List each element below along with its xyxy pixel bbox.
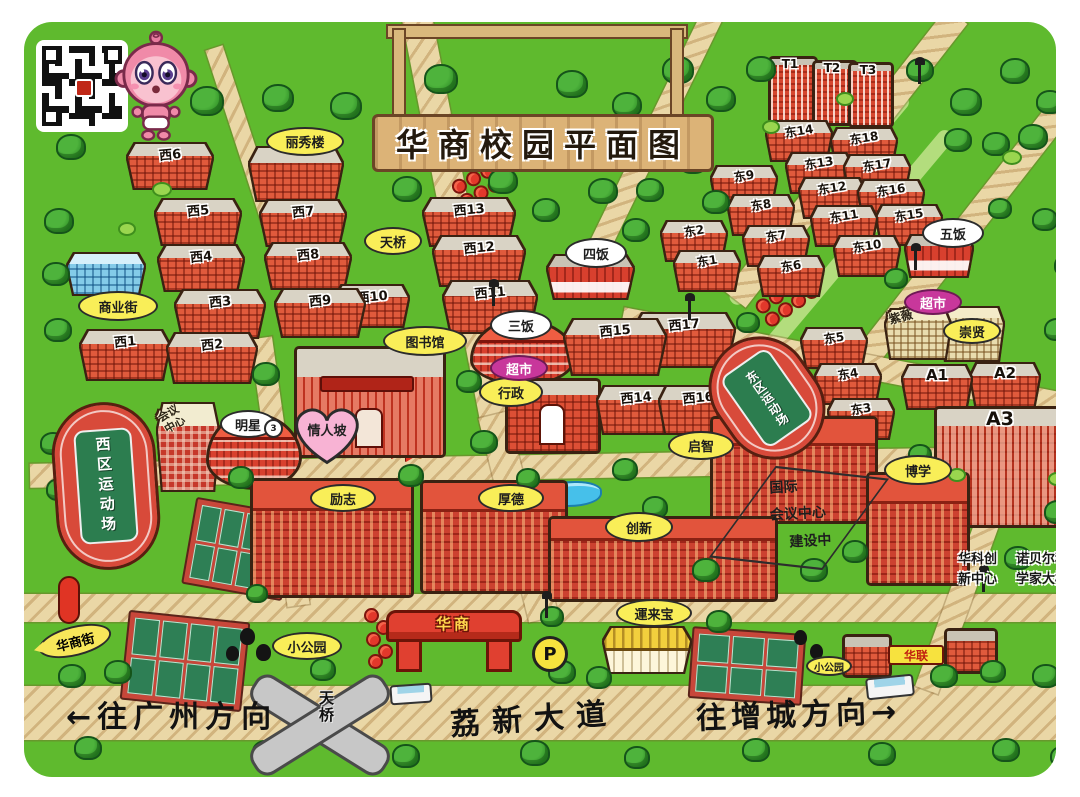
qr-module [42, 99, 49, 106]
street-lamp [918, 64, 921, 84]
dark-tree [794, 630, 807, 645]
court-cell [697, 634, 730, 664]
west-field-label: 西区运动场 [92, 435, 120, 536]
building-roof [604, 628, 690, 651]
qr-module [55, 73, 62, 80]
tree [736, 312, 760, 333]
qr-module [49, 73, 56, 80]
tree [692, 558, 720, 582]
street-lamp [914, 250, 917, 270]
building-body [851, 71, 891, 125]
qr-module [89, 59, 96, 66]
building-shape [604, 628, 690, 672]
qr-module [89, 113, 96, 120]
tree [44, 208, 74, 234]
building: T1 [768, 56, 812, 118]
building: 西12 [434, 237, 524, 285]
east-field-infield: 东区运动场 [719, 346, 815, 449]
building-body [845, 647, 889, 675]
qr-module [69, 113, 76, 120]
building: 西8 [266, 244, 350, 288]
tree [1050, 746, 1056, 767]
bubble-label: 华联 [888, 645, 944, 665]
tree [980, 660, 1006, 683]
building-shape [68, 254, 144, 294]
bubble-label: 五饭 [922, 218, 984, 248]
court-cell [212, 547, 238, 585]
tree [104, 660, 132, 684]
tree [1018, 124, 1048, 150]
tree [44, 318, 72, 342]
tree [950, 88, 982, 116]
qr-module [62, 73, 69, 80]
qr-module [55, 79, 62, 86]
court-cell [131, 618, 159, 657]
building: T3 [848, 62, 888, 122]
court-cell [159, 620, 187, 659]
tree [246, 584, 268, 603]
tree [330, 92, 362, 120]
building: A1 [903, 366, 971, 408]
tree [228, 466, 254, 489]
nobel-line-2: 学家大楼 [1016, 570, 1056, 590]
bubble-label: 小公园 [806, 656, 852, 676]
campus-map-screenshot: 西区运动场 东区运动场 国际 会议中心 建设中 华科创 新中心 诺贝尔科 学家大… [0, 0, 1080, 797]
bubble-label: 厚德 [478, 484, 544, 512]
building: 东1 [675, 252, 739, 290]
bridge-label: 天桥 [316, 690, 337, 724]
building: 西9 [276, 290, 364, 336]
building-label: T1 [768, 57, 812, 71]
tree [1000, 58, 1030, 84]
building-label: T3 [848, 63, 888, 77]
tree [588, 178, 618, 204]
building-shape [866, 472, 970, 586]
tree [532, 198, 560, 222]
sign-post-right [670, 28, 684, 124]
tree [424, 64, 458, 94]
qr-module [102, 113, 109, 120]
tree [520, 740, 550, 766]
street-lamp [492, 286, 495, 306]
dark-tree [226, 646, 239, 661]
street-lamp [545, 598, 548, 618]
street-lamp [688, 300, 691, 320]
tree [868, 742, 896, 766]
qr-module [95, 73, 102, 80]
building: A2 [971, 364, 1039, 406]
building-body [68, 264, 144, 294]
huake-innovation-center-label: 华科创 新中心 [958, 550, 997, 589]
building-body [604, 651, 690, 672]
tree [1036, 90, 1056, 114]
tree [392, 176, 422, 202]
bubble-label: 超市 [904, 289, 962, 315]
building-shape [842, 634, 892, 678]
building-body [253, 511, 411, 595]
building-label: A1 [903, 366, 971, 384]
lovers-slope-heart: 情人坡 [288, 404, 366, 464]
building-body [771, 65, 815, 121]
tree [624, 746, 650, 769]
building: 紫薇 [886, 310, 950, 358]
tree [612, 458, 638, 481]
tree [1044, 500, 1056, 524]
court-cell [196, 505, 222, 543]
building [604, 628, 690, 672]
tree [470, 430, 498, 454]
qr-module [55, 93, 62, 100]
qr-module [42, 66, 49, 73]
court-cell [189, 543, 215, 581]
tree [706, 610, 732, 633]
tree [742, 738, 770, 762]
west-field-infield: 西区运动场 [73, 427, 140, 544]
qr-module [55, 86, 62, 93]
building: 西2 [168, 334, 256, 382]
flower [368, 654, 383, 669]
qr-module [89, 53, 96, 60]
bush [762, 120, 780, 134]
entrance-arch [539, 404, 565, 444]
building-label: A2 [971, 364, 1039, 382]
bubble-label: 三饭 [490, 310, 552, 340]
huake-line-1: 华科创 [958, 550, 997, 570]
road-label-to-zengcheng: 往增城方向→ [695, 686, 902, 737]
bubble-label: 启智 [668, 431, 734, 460]
sign-crossbar [386, 24, 688, 39]
building: T2 [812, 60, 852, 120]
qr-module [75, 59, 82, 66]
building: 西6 [128, 144, 212, 188]
court-cell [731, 636, 764, 666]
library-banner [320, 376, 413, 393]
tree [1032, 664, 1056, 688]
tree [392, 744, 420, 768]
qr-module [95, 106, 102, 113]
tree [586, 666, 612, 689]
red-feature [58, 576, 80, 624]
east-field-label: 东区运动场 [741, 367, 792, 430]
main-gate: 华商 [392, 610, 516, 672]
building-shape [250, 148, 342, 200]
qr-module [75, 46, 82, 53]
tree [556, 70, 588, 98]
bubble-label: 励志 [310, 484, 376, 512]
tree [706, 86, 736, 112]
tree [636, 178, 664, 202]
huake-line-2: 新中心 [958, 570, 997, 590]
huashang-street-label: 华商街 [35, 617, 114, 664]
map-layer: 西区运动场 东区运动场 国际 会议中心 建设中 华科创 新中心 诺贝尔科 学家大… [24, 22, 1056, 777]
building-label: T2 [812, 61, 852, 75]
qr-module [82, 113, 89, 120]
road-label-to-guangzhou: ←往广州方向 [66, 692, 277, 736]
qr-module [49, 79, 56, 86]
qr-module [69, 46, 76, 53]
tree [56, 134, 86, 160]
qr-module [82, 46, 89, 53]
court-cell [695, 664, 728, 694]
huashang-street-text: 华商街 [54, 627, 96, 655]
bubble-label: 超市 [490, 355, 548, 381]
qr-module [89, 106, 96, 113]
building: 东5 [802, 329, 866, 367]
tree [1032, 208, 1056, 231]
flower [364, 608, 379, 623]
bubble-label: 天桥 [364, 227, 422, 255]
tree [702, 190, 730, 214]
parking-sign: P [532, 636, 568, 672]
tree [42, 262, 70, 286]
tree [540, 606, 564, 627]
tree [1044, 318, 1056, 341]
building-body [250, 163, 342, 200]
qr-module [75, 113, 82, 120]
building-label: A3 [934, 408, 1056, 430]
building: 西1 [81, 331, 169, 379]
qr-module [75, 66, 82, 73]
qr-module [75, 106, 82, 113]
qr-module [62, 106, 69, 113]
building-roof [947, 631, 995, 641]
nobel-scientist-building-label: 诺贝尔科 学家大楼 [1016, 550, 1056, 589]
bubble-label: 图书馆 [383, 326, 467, 356]
flower [366, 632, 381, 647]
qr-module [82, 106, 89, 113]
sign-post-left [392, 28, 406, 124]
qr-module [42, 73, 49, 80]
bubble-label: 小公园 [272, 632, 342, 660]
campus-map: 西区运动场 东区运动场 国际 会议中心 建设中 华科创 新中心 诺贝尔科 学家大… [24, 22, 1056, 777]
map-title: 华商校园平面图 [396, 120, 690, 166]
tree [884, 268, 908, 289]
qr-module [89, 46, 96, 53]
qr-logo [75, 79, 93, 97]
conference-center-label: 国际 会议中心 建设中 [740, 471, 856, 559]
bubble-label: 商业街 [78, 291, 158, 321]
qr-module [42, 93, 49, 100]
building: 西5 [156, 200, 240, 244]
dark-tree [256, 644, 271, 661]
bubble-label: 崇贤 [943, 318, 1001, 344]
bubble-label: 博学 [884, 455, 952, 485]
tree [58, 664, 86, 688]
tree [262, 84, 294, 112]
conference-line-3: 建设中 [765, 526, 856, 558]
bush [118, 222, 136, 236]
building-roof [68, 254, 144, 264]
court-cell [766, 638, 799, 668]
court-cell [218, 509, 244, 547]
tree [74, 736, 102, 760]
tree [930, 664, 958, 688]
qr-module [102, 79, 109, 86]
building-body [548, 267, 633, 298]
qr-finder [42, 108, 60, 126]
qr-module [89, 119, 96, 126]
bush [1002, 150, 1022, 165]
lovers-slope-label: 情人坡 [288, 420, 366, 439]
tree [944, 128, 972, 152]
court-cell [187, 623, 215, 662]
bubble-label: 丽秀楼 [266, 127, 344, 156]
nobel-line-1: 诺贝尔科 [1016, 550, 1056, 570]
building-body [423, 512, 565, 591]
west-sports-field: 西区运动场 [48, 399, 163, 574]
gate-label: 华商 [392, 613, 516, 634]
tree [398, 464, 424, 487]
tree [456, 370, 482, 393]
building [68, 254, 144, 294]
tree [988, 198, 1012, 219]
building-body [869, 504, 967, 583]
building: 西4 [159, 246, 243, 290]
qr-module [42, 79, 49, 86]
bubble-label: 3 [264, 419, 283, 438]
qr-finder [42, 46, 60, 64]
building [250, 148, 342, 200]
bush [152, 182, 172, 197]
bubble-label: 四饭 [565, 238, 627, 268]
building: 东6 [759, 257, 823, 295]
tree [1054, 254, 1056, 277]
qr-module [75, 99, 82, 106]
building: 西15 [565, 320, 665, 374]
tree [622, 218, 650, 242]
bus [389, 683, 432, 706]
bubble-label: 運来宝 [616, 599, 692, 627]
dark-tree [240, 628, 255, 645]
map-title-sign: 华商校园平面图 [372, 114, 714, 172]
building-roof [845, 637, 889, 647]
mascot-icon [112, 28, 200, 143]
tree [992, 738, 1020, 762]
mascot [112, 28, 200, 147]
bush [836, 92, 854, 106]
building: 西7 [261, 201, 345, 245]
tree [252, 362, 280, 386]
bubble-label: 创新 [605, 512, 673, 542]
bubble-label: 行政 [479, 377, 543, 407]
